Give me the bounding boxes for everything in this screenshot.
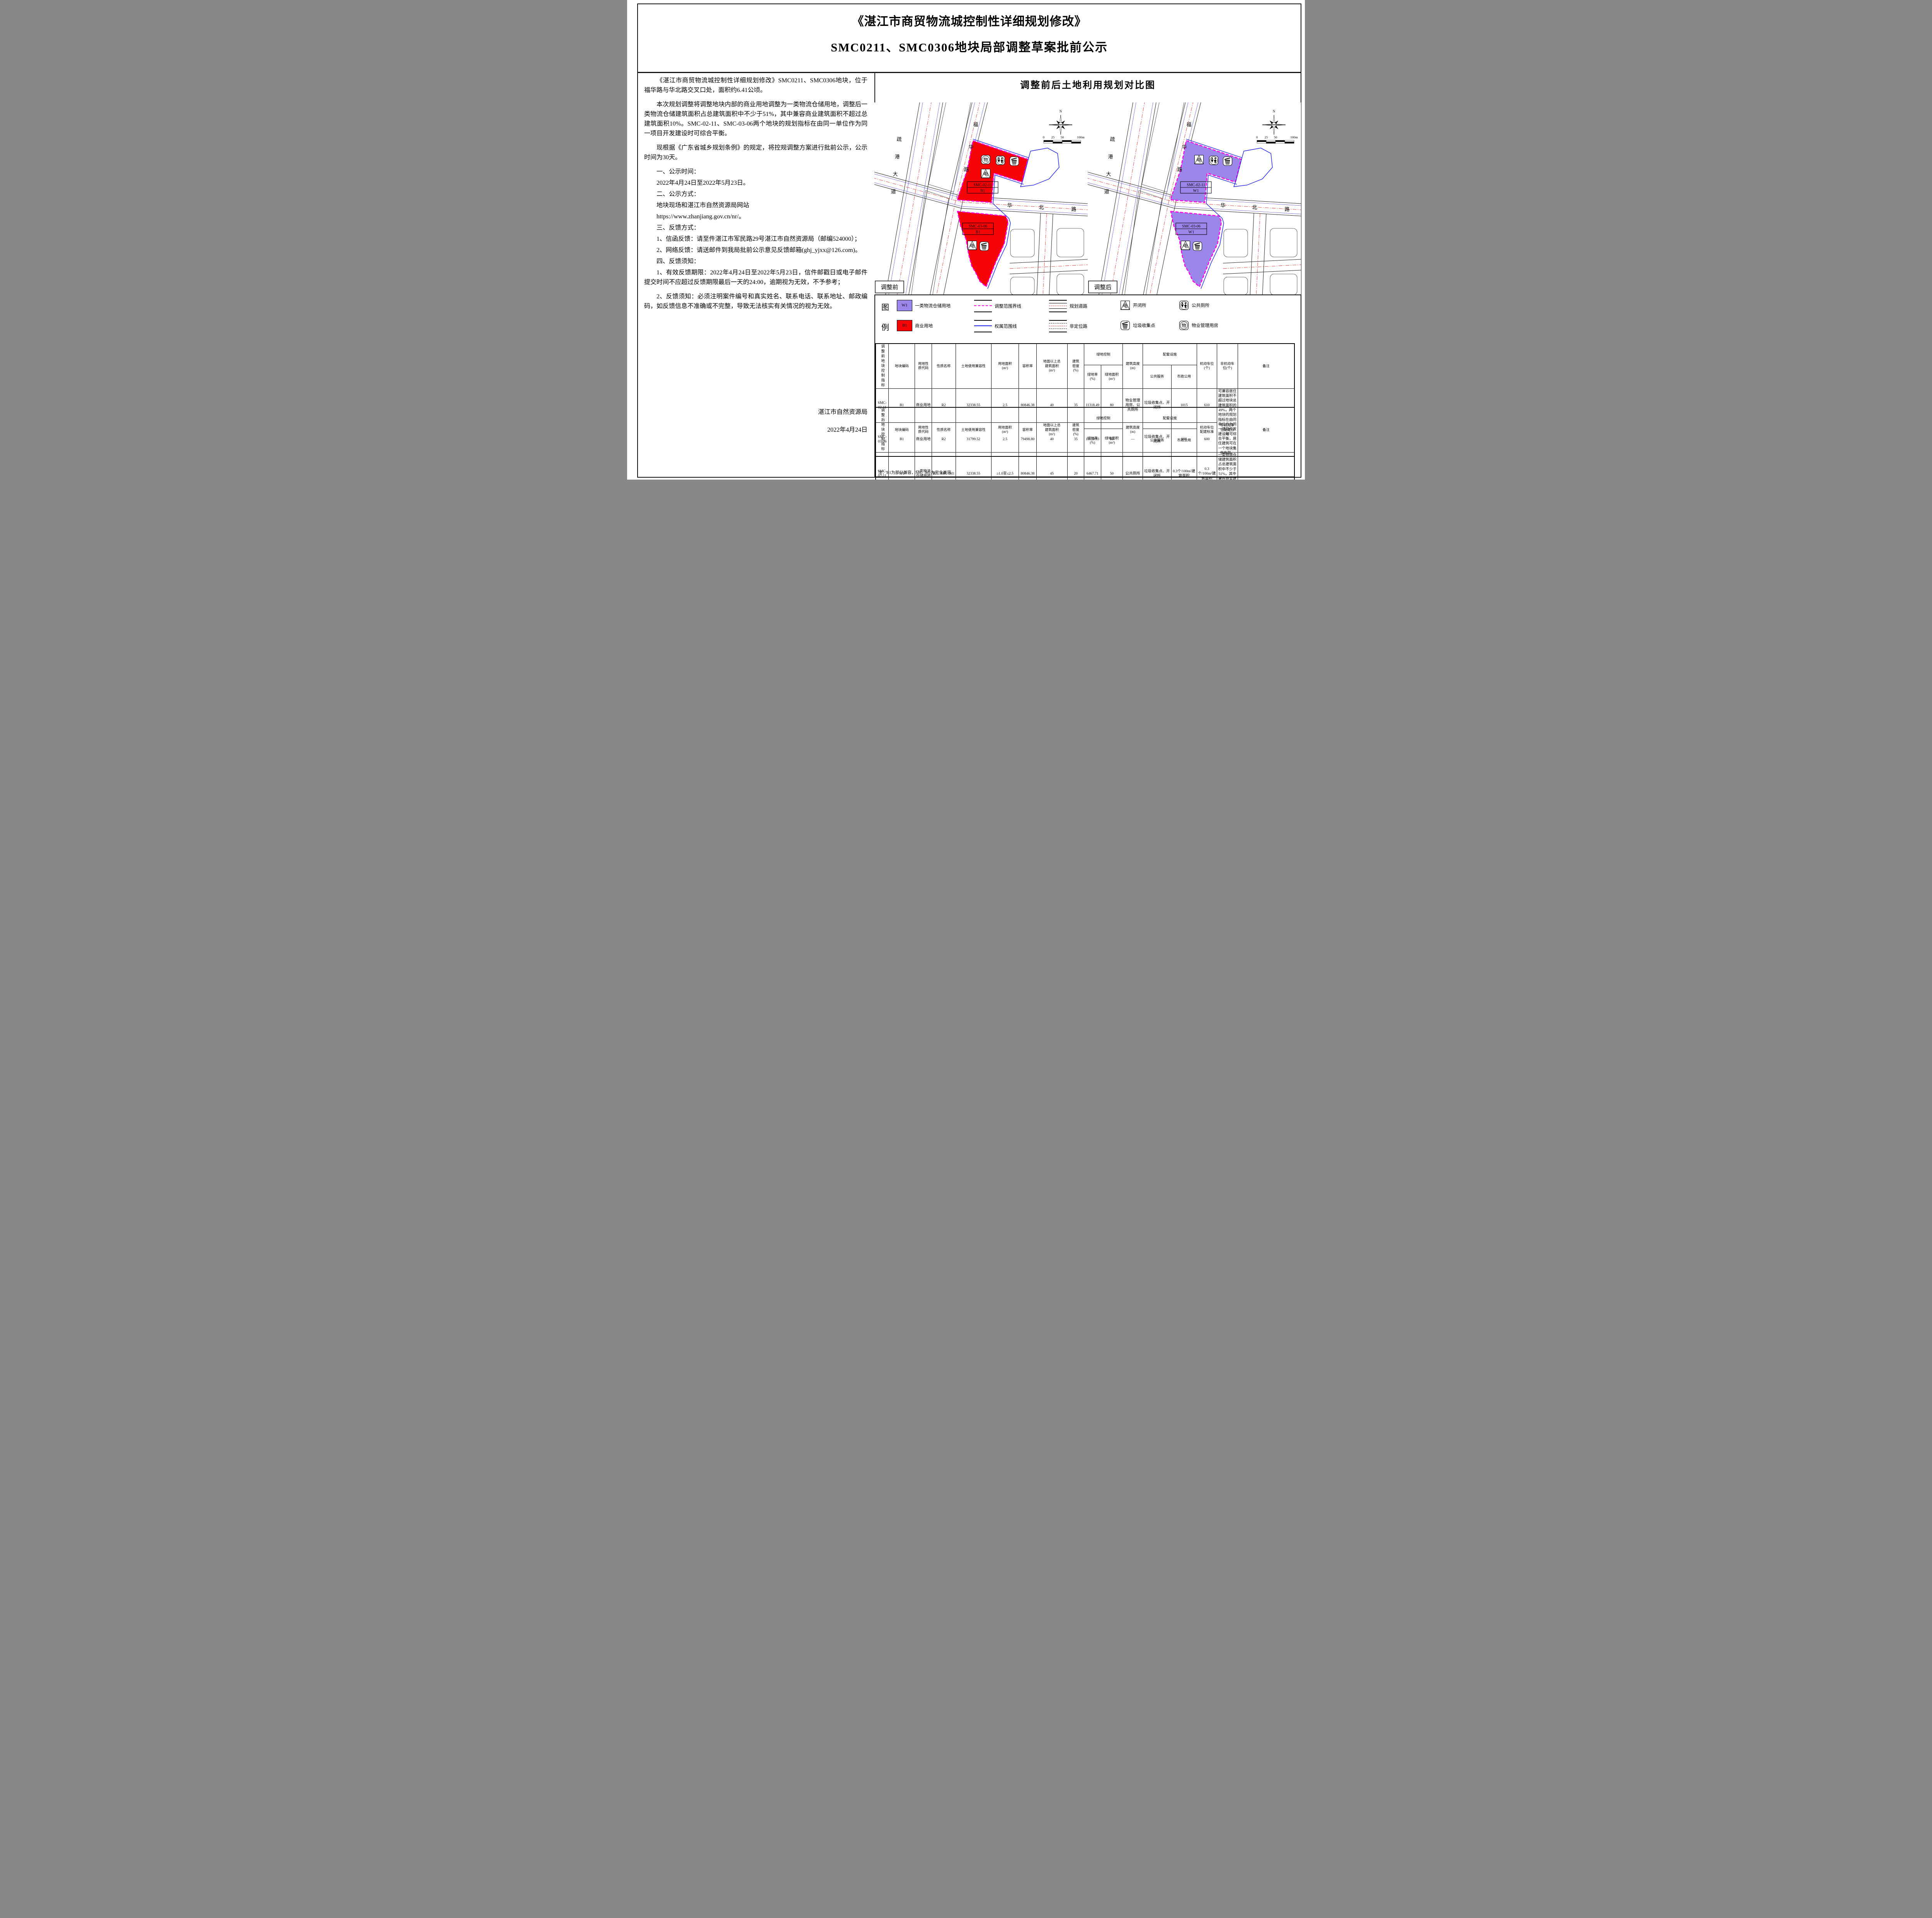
legend-item-label: 非定位路	[1070, 323, 1087, 329]
parcel-use: B1	[980, 189, 985, 193]
table-header: 建筑 密度 (%)	[1067, 407, 1084, 452]
signature-date: 2022年4月24日	[644, 424, 895, 434]
trash-icon	[1010, 157, 1019, 166]
legend-item-label: 规划道路	[1070, 303, 1087, 309]
table-header: 用地面积 (m²)	[991, 407, 1019, 452]
table-header: 备注	[1238, 344, 1294, 388]
table-header: 机动车位 (个)	[1197, 344, 1217, 388]
trash-icon	[1223, 157, 1232, 166]
dian-icon-glyph: 电	[970, 243, 975, 249]
scale-tick: 25	[1051, 135, 1055, 139]
legend-item-label: 公共厕所	[1192, 302, 1209, 308]
table-subheader: 公共服务	[1143, 365, 1172, 388]
road-name-char: 大	[893, 171, 898, 177]
signature-org: 湛江市自然资源局	[644, 407, 889, 416]
notice-paragraph: 本次规划调整将调整地块内部的商业用地调整为一类物流仓储用地，调整后一类物流仓储建…	[644, 100, 867, 138]
legend-item: 物物业管理用房	[1179, 320, 1218, 331]
scale-tick: 25	[1265, 135, 1268, 139]
road-name-char: 大	[1106, 171, 1111, 177]
table-header: 配套设施	[1143, 407, 1197, 429]
toilet-figure-head	[1211, 158, 1213, 159]
legend-item-label: 调整范围界线	[995, 303, 1021, 309]
legend-label: 图 例	[881, 298, 890, 338]
toilet-figure-head	[1214, 158, 1216, 159]
dian-icon: 电	[1181, 241, 1190, 250]
table-group-label: 调整前地块控制指标	[876, 344, 889, 388]
parcel-use: B1	[976, 230, 980, 235]
page-title: 《湛江市商贸物流城控制性详细规划修改》 SMC0211、SMC0306地块局部调…	[637, 12, 1301, 55]
road-name-char: 疏	[896, 136, 901, 142]
table-header: 配套设施	[1143, 344, 1197, 365]
toilet-figure-head	[1182, 303, 1183, 304]
table-header: 绿地控制	[1084, 344, 1123, 365]
road-name-char: 福	[1186, 122, 1191, 128]
trash-icon	[980, 242, 989, 251]
toilet-icon	[996, 156, 1005, 165]
parcel-use: W1	[1193, 189, 1199, 193]
table-header: 建筑高度 (m)	[1122, 344, 1143, 388]
table-header: 机动车位 配建标准	[1197, 407, 1217, 452]
road-name-char: 路	[1284, 206, 1289, 212]
dian-icon-glyph: 电	[1123, 303, 1128, 309]
dian-icon: 电	[1195, 155, 1204, 164]
table-header: 建筑高度 (m)	[1122, 407, 1143, 452]
road-name-char: 道	[1104, 189, 1109, 194]
wu-icon-glyph: 物	[983, 157, 988, 163]
notice-paragraph: 三、反馈方式：	[644, 223, 867, 233]
parcel-code: SMC-02-11	[1187, 183, 1205, 187]
road-name-char: 港	[895, 154, 900, 160]
legend-item: 调整范围界线	[974, 300, 1021, 312]
road-name-char: 华	[1007, 203, 1012, 208]
scale-tick: 0	[1256, 135, 1258, 139]
page-title-line2: SMC0211、SMC0306地块局部调整草案批前公示	[637, 37, 1301, 55]
road-name-char: 华	[1220, 203, 1225, 208]
road-name-char: 华	[1182, 144, 1187, 150]
table-header: 地面以上总 建筑面积 (m²)	[1036, 407, 1067, 452]
legend-trash-icon	[1120, 320, 1130, 331]
road-name-char: 路	[1071, 206, 1076, 212]
legend-property-line	[974, 320, 992, 332]
legend-item: W1一类物流仓储用地	[897, 300, 951, 311]
notice-paragraph: 四、反馈须知：	[644, 257, 867, 266]
notice-body: 《湛江市商贸物流城控制性详细规划修改》SMC0211、SMC0306地块，位于福…	[644, 76, 867, 316]
table-header: 地面以上总 建筑面积 (m²)	[1036, 344, 1067, 388]
trash-icon	[1193, 242, 1202, 251]
legend-unlocated-road	[1049, 320, 1067, 332]
table-header: 非机动车 位配建标 准	[1217, 407, 1238, 452]
toilet-figure-head	[1001, 158, 1003, 159]
map-corner-label: 调整前	[875, 281, 904, 293]
notice-paragraph: https://www.zhanjiang.gov.cn/nr/。	[644, 212, 867, 221]
legend: 图 例 W1一类物流仓储用地调整范围界线 规划道路 电开闭所 公共厕所B1商业用…	[874, 294, 1301, 343]
scale-tick: 0	[1043, 135, 1044, 139]
notice-paragraph: 1、信函反馈：请至件湛江市军民路29号湛江市自然资源局（邮编524000）；	[644, 234, 867, 244]
table-subheader: 绿地面积 (m²)	[1101, 429, 1122, 452]
parcel-code: SMC-03-06	[1182, 225, 1201, 229]
table-header: 地块编码	[889, 407, 915, 452]
toilet-icon-box	[996, 156, 1005, 165]
notice-paragraph: 2022年4月24日至2022年5月23日。	[644, 178, 867, 188]
legend-planned-road	[1049, 300, 1067, 312]
table-header: 用地性 质代码	[915, 344, 932, 388]
map-corner-label: 调整后	[1088, 281, 1117, 293]
road-name-char: 港	[1108, 154, 1113, 160]
notice-paragraph: 1、有效反馈期限：2022年4月24日至2022年5月23日，信件邮戳日或电子邮…	[644, 268, 867, 287]
scale-tick: 100m	[1290, 135, 1298, 139]
legend-item-label: 一类物流仓储用地	[915, 303, 951, 309]
north-label: N	[1060, 109, 1062, 113]
wu-icon: 物	[981, 155, 990, 164]
road-name-char: 北	[1252, 204, 1257, 210]
dian-icon: 电	[981, 169, 990, 178]
scale-tick: 50	[1061, 135, 1064, 139]
table-header: 非机动车 位(个)	[1217, 344, 1238, 388]
legend-item-label: 权属范围线	[995, 323, 1017, 329]
notice-paragraph: 现根据《广东省城乡规划条例》的规定，将控规调整方案进行批前公示，公示时间为30天…	[644, 143, 867, 162]
map-after: SMC-02-11 W1 SMC-03-06 W1 电 电 疏港大道福华路华北路…	[1088, 102, 1301, 294]
legend-item-label: 物业管理用房	[1192, 322, 1218, 328]
table-subheader: 绿地率 (%)	[1084, 429, 1101, 452]
map-variant-label: 调整前	[881, 284, 898, 291]
table-group-label: 调整后地块控制指标	[876, 407, 889, 452]
map-after-panel: SMC-02-11 W1 SMC-03-06 W1 电 电 疏港大道福华路华北路…	[1088, 102, 1301, 294]
table-subheader: 绿地率 (%)	[1084, 365, 1101, 388]
legend-swatch-b1: B1	[897, 320, 912, 331]
toilet-icon	[1209, 156, 1218, 165]
road-name-char: 北	[1039, 204, 1044, 210]
table-header: 容积率	[1019, 407, 1037, 452]
table-header: 用地面积 (m²)	[991, 344, 1019, 388]
wu-icon-glyph: 物	[1182, 323, 1186, 328]
road-name-char: 福	[973, 122, 978, 128]
legend-item: 垃圾收集点	[1120, 320, 1155, 331]
notice-paragraph: 地块现场和湛江市自然资源局网站	[644, 201, 867, 210]
table-header: 建筑 密度 (%)	[1067, 344, 1084, 388]
toilet-icon-box	[1180, 301, 1189, 310]
legend-item: B1商业用地	[897, 320, 933, 331]
notice-paragraph: 《湛江市商贸物流城控制性详细规划修改》SMC0211、SMC0306地块，位于福…	[644, 76, 867, 95]
toilet-figure-head	[1185, 303, 1186, 304]
table-subheader: 绿地面积 (m²)	[1101, 365, 1122, 388]
table-header: 性质名称	[932, 407, 956, 452]
dian-icon-glyph: 电	[1197, 158, 1202, 163]
parcel-code: SMC-02-11	[973, 183, 992, 187]
map-variant-label: 调整后	[1094, 284, 1111, 291]
table-header: 用地性 质代码	[915, 407, 932, 452]
legend-item: 电开闭所	[1120, 300, 1146, 311]
table-after: 调整后地块控制指标地块编码用地性 质代码性质名称土地使用兼容性用地面积 (m²)…	[875, 407, 1295, 480]
road-name-char: 路	[964, 167, 969, 172]
notice-paragraph: 2、反馈须知：必须注明案件编号和真实姓名、联系电话、联系地址、邮政编码，如反馈信…	[644, 292, 867, 311]
title-separator	[637, 72, 1301, 73]
table-header: 土地使用兼容性	[956, 407, 991, 452]
notice-paragraph: 二、公示方式：	[644, 189, 867, 199]
table-subheader: 市政公用	[1171, 429, 1197, 452]
comparison-title: 调整前后土地利用规划对比图	[874, 77, 1301, 91]
legend-item: 非定位路	[1049, 320, 1087, 332]
road-name-char: 路	[1177, 167, 1182, 172]
toilet-icon-box	[1209, 156, 1218, 165]
toilet-figure-head	[998, 158, 1000, 159]
legend-label-top: 图	[881, 298, 890, 318]
table-after-wrap: 调整后地块控制指标地块编码用地性 质代码性质名称土地使用兼容性用地面积 (m²)…	[875, 407, 1295, 480]
legend-dian-icon: 电	[1120, 300, 1130, 311]
road-name-char: 道	[891, 189, 896, 194]
parcel-use: W1	[1188, 230, 1194, 235]
map-before-panel: SMC-02-11 B1 SMC-03-06 B1 物 电 电 疏港大道福华路华…	[874, 102, 1088, 294]
dian-icon-glyph: 电	[983, 172, 988, 177]
road-name-char: 疏	[1110, 136, 1115, 142]
page-title-line1: 《湛江市商贸物流城控制性详细规划修改》	[637, 12, 1301, 29]
legend-item-label: 商业用地	[915, 323, 933, 329]
dian-icon-glyph: 电	[1183, 243, 1188, 249]
legend-wu-icon: 物	[1179, 320, 1189, 331]
legend-toilet-icon	[1179, 300, 1189, 311]
legend-item: 公共厕所	[1179, 300, 1209, 311]
legend-adjust-boundary	[974, 300, 992, 312]
table-subheader: 公共服务	[1143, 429, 1172, 452]
table-footnote: 注：B1为部分兼容，M0、M1为完全兼容	[875, 470, 1295, 477]
scale-tick: 100m	[1077, 135, 1085, 139]
legend-label-bottom: 例	[881, 318, 890, 338]
legend-item: 规划道路	[1049, 300, 1087, 312]
map-before: SMC-02-11 B1 SMC-03-06 B1 物 电 电 疏港大道福华路华…	[874, 102, 1088, 294]
table-header: 绿地控制	[1084, 407, 1123, 429]
north-label: N	[1273, 109, 1276, 113]
table-header: 备注	[1238, 407, 1294, 452]
parcel-code: SMC-03-06	[969, 225, 987, 229]
notice-paragraph: 2、网络反馈：请送邮件到我局批前公示意见反馈邮箱(ghj_yjxx@126.co…	[644, 245, 867, 255]
legend-item-label: 垃圾收集点	[1133, 322, 1155, 328]
table-header: 土地使用兼容性	[956, 344, 991, 388]
table-header: 容积率	[1019, 344, 1037, 388]
legend-swatch-w1: W1	[897, 300, 912, 311]
notice-page: 《湛江市商贸物流城控制性详细规划修改》 SMC0211、SMC0306地块局部调…	[627, 0, 1305, 480]
legend-item: 权属范围线	[974, 320, 1017, 332]
scale-tick: 50	[1274, 135, 1277, 139]
road-name-char: 华	[968, 144, 973, 150]
table-header: 地块编码	[889, 344, 915, 388]
notice-paragraph: 一、公示时间：	[644, 167, 867, 177]
dian-icon: 电	[968, 241, 977, 250]
table-subheader: 市政公用	[1171, 365, 1197, 388]
legend-item-label: 开闭所	[1133, 302, 1146, 308]
table-header: 性质名称	[932, 344, 956, 388]
